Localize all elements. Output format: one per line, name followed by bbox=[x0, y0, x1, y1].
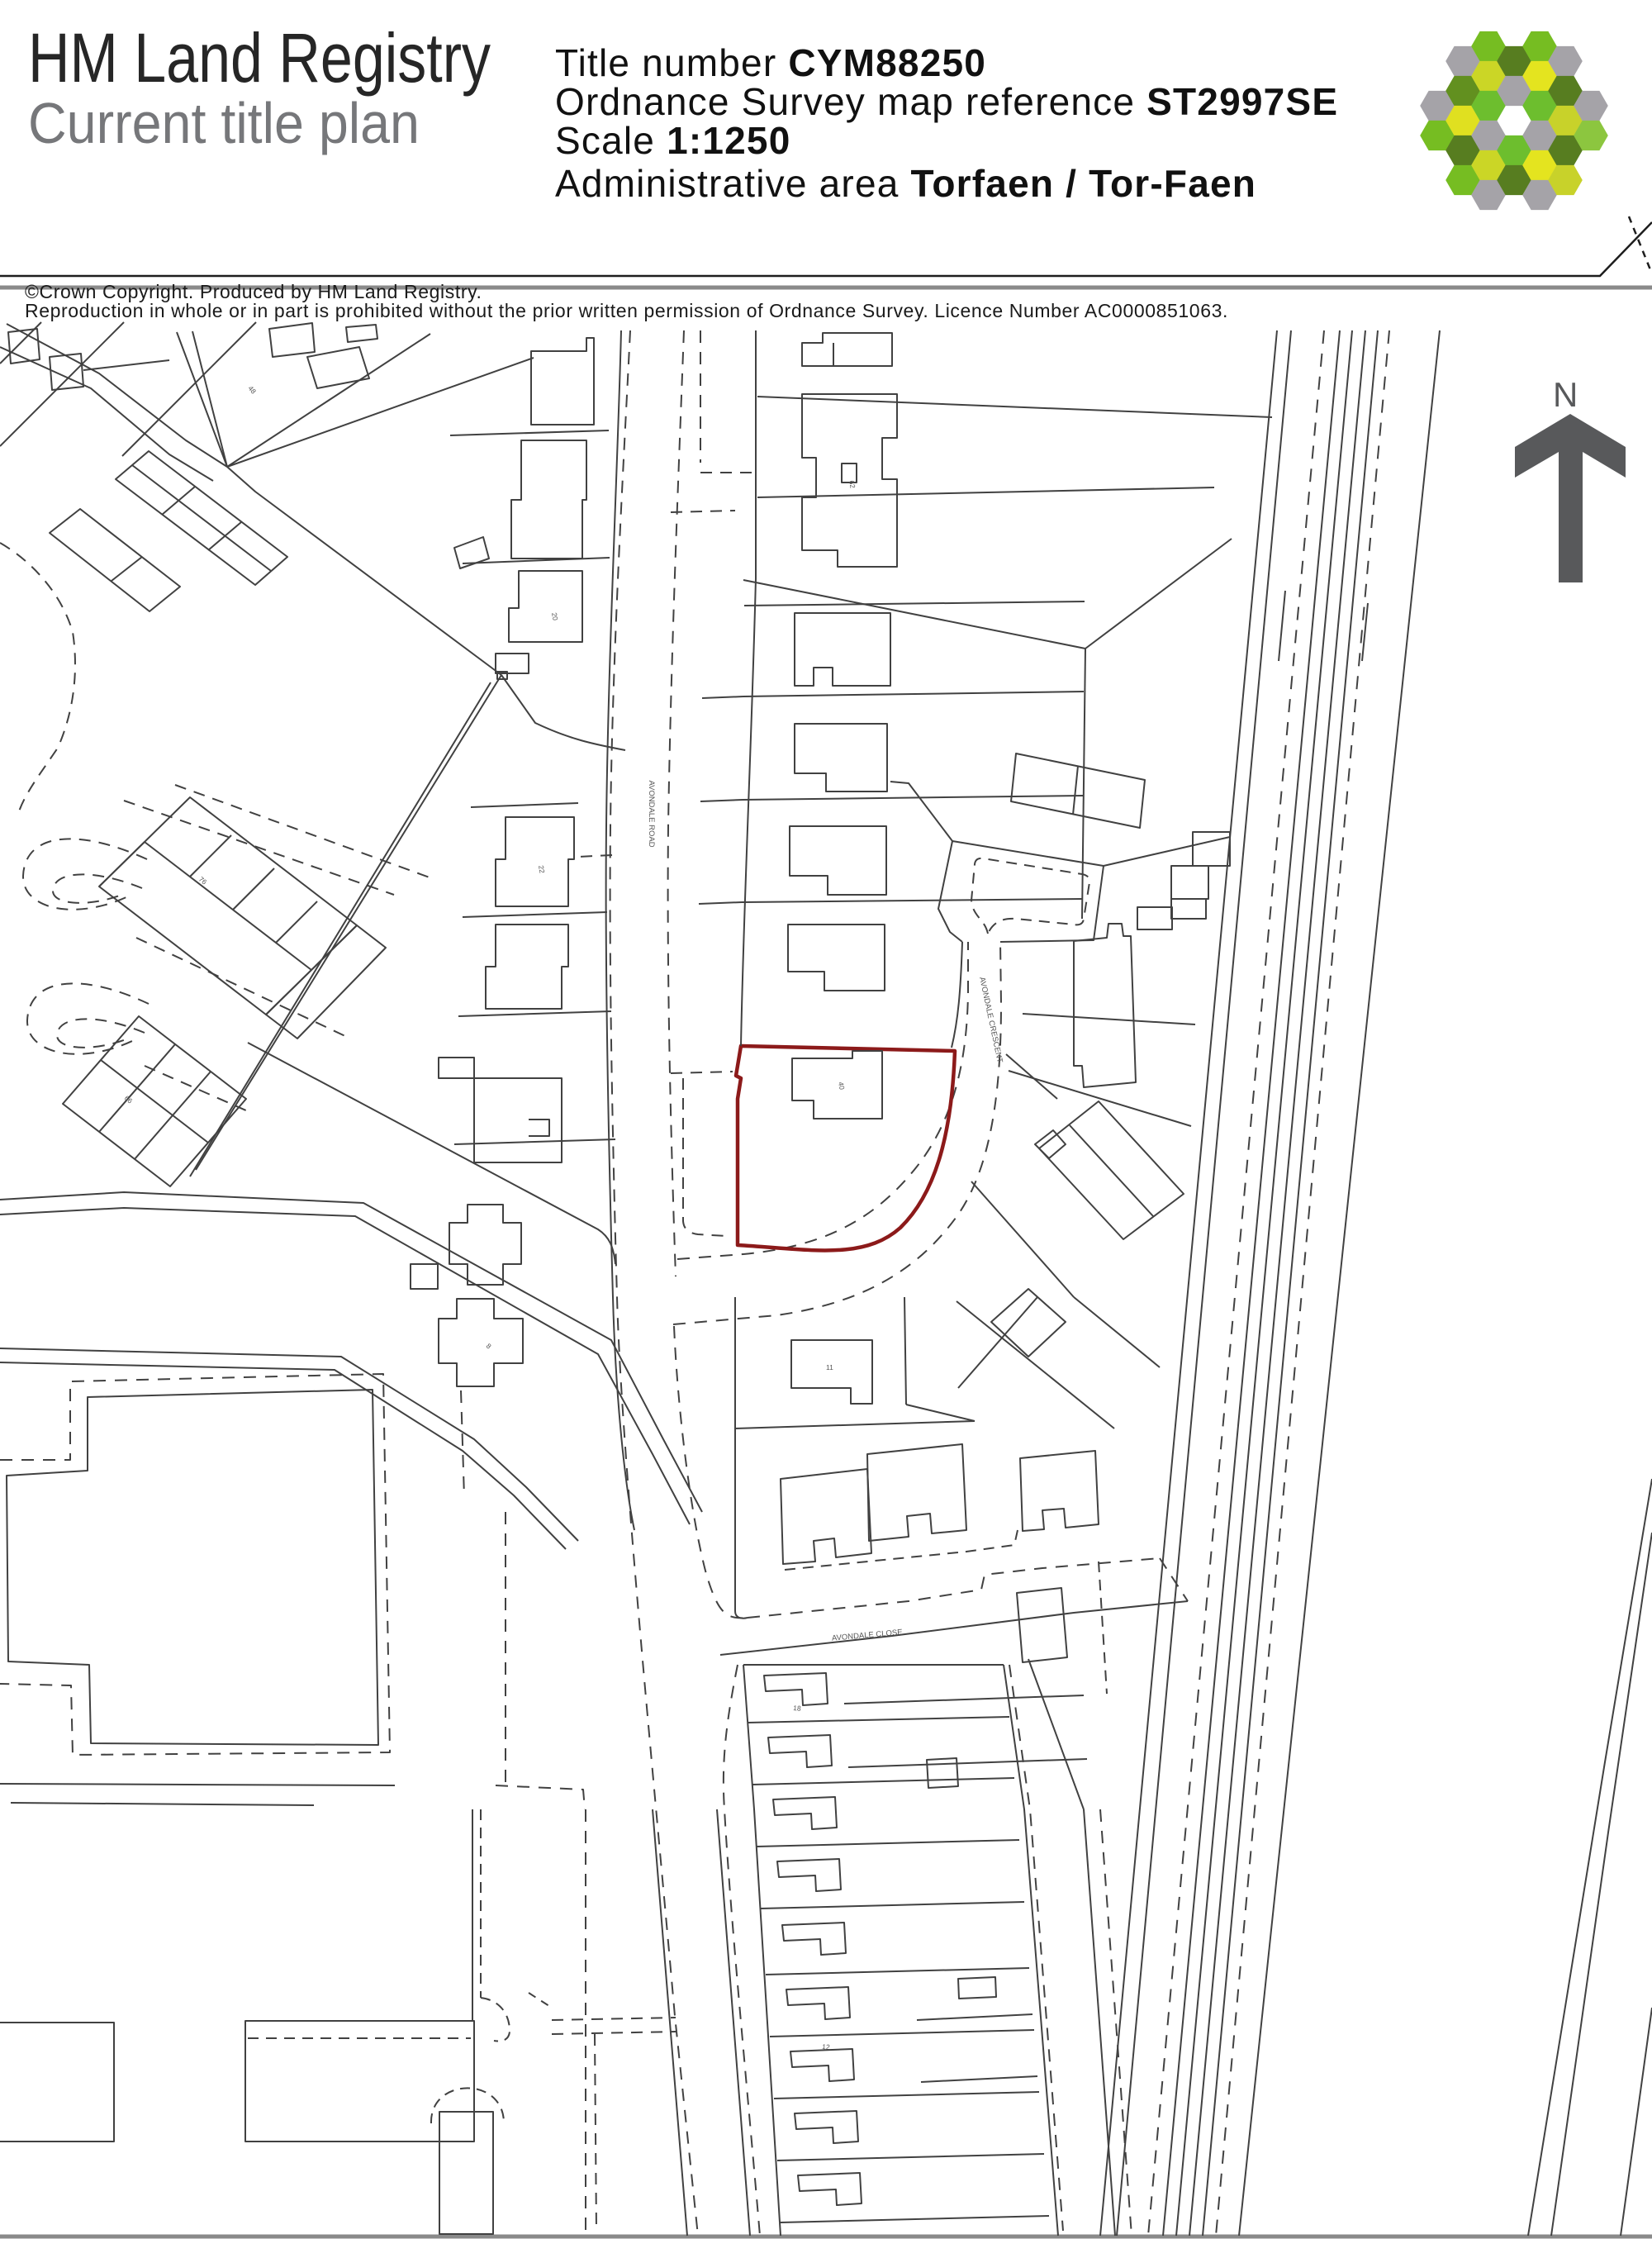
svg-text:AVONDALE ROAD: AVONDALE ROAD bbox=[647, 780, 656, 847]
svg-text:11: 11 bbox=[826, 1363, 833, 1371]
svg-text:62: 62 bbox=[847, 480, 857, 489]
svg-text:Current title plan: Current title plan bbox=[28, 91, 420, 155]
svg-text:20: 20 bbox=[550, 612, 560, 621]
svg-text:12: 12 bbox=[822, 2042, 831, 2051]
svg-text:22: 22 bbox=[537, 865, 547, 874]
svg-text:N: N bbox=[1553, 375, 1578, 414]
svg-text:40: 40 bbox=[837, 1081, 847, 1091]
svg-text:18: 18 bbox=[793, 1704, 802, 1713]
svg-text:Title number CYM88250: Title number CYM88250 bbox=[555, 41, 986, 84]
svg-text:HM Land Registry: HM Land Registry bbox=[28, 19, 491, 97]
svg-text:Ordnance Survey map reference: Ordnance Survey map reference ST2997SE bbox=[555, 80, 1338, 123]
svg-text:Administrative area Torfaen /: Administrative area Torfaen / Tor-Faen bbox=[555, 162, 1256, 205]
svg-text:Reproduction in whole or in pa: Reproduction in whole or in part is proh… bbox=[25, 300, 1228, 321]
svg-text:Scale 1:1250: Scale 1:1250 bbox=[555, 119, 791, 162]
